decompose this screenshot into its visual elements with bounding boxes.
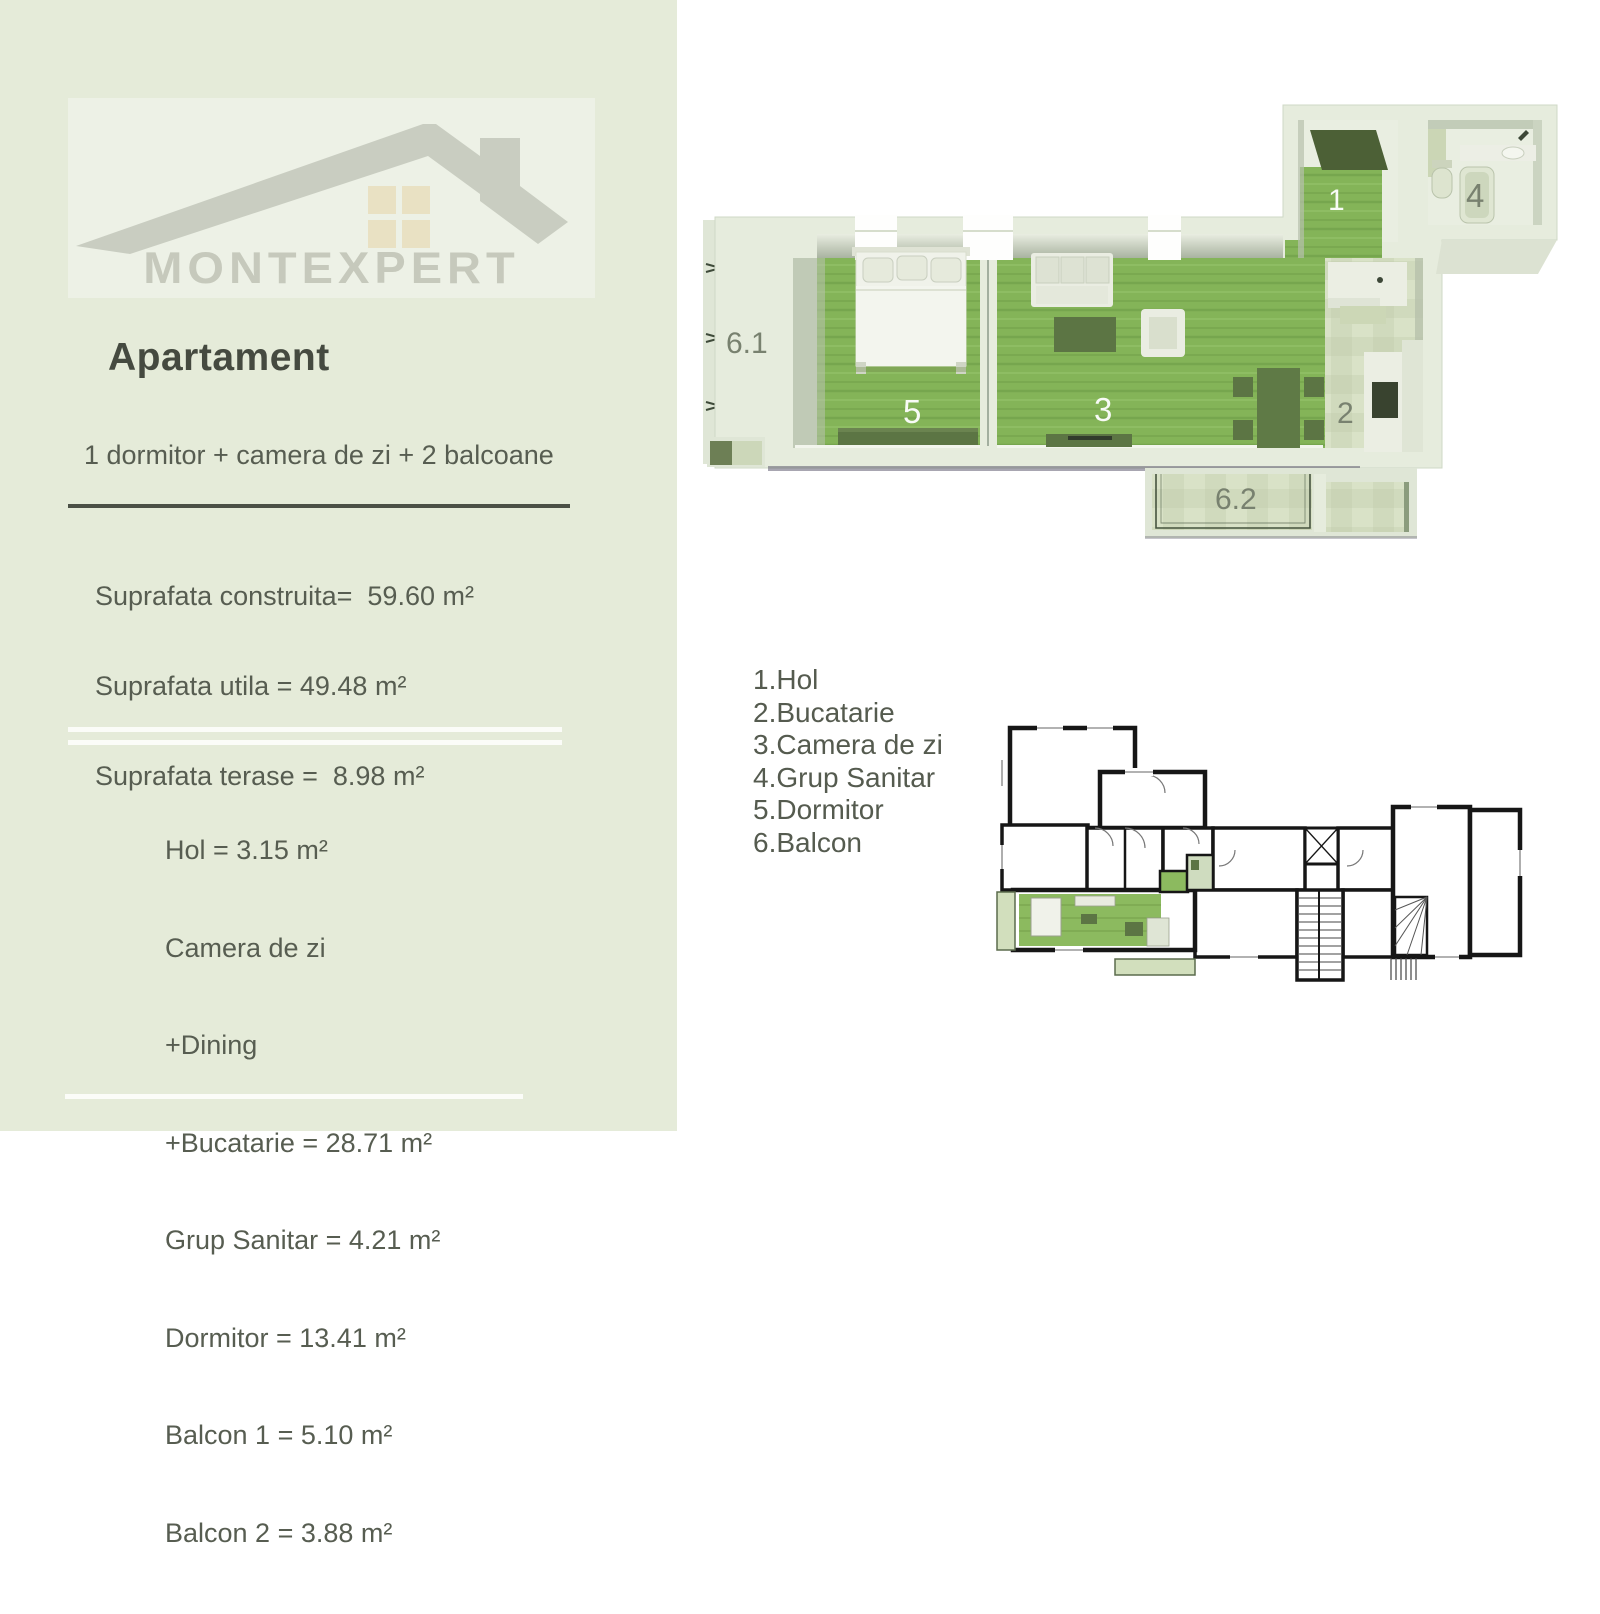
legend-item: 4.Grup Sanitar (753, 762, 943, 795)
legend-item: 3.Camera de zi (753, 729, 943, 762)
unit-bath (1187, 855, 1213, 890)
elevator-icon (1305, 828, 1338, 864)
fridge-icon (1364, 340, 1423, 452)
room-line: Hol = 3.15 m² (165, 834, 440, 867)
room-line: Camera de zi (165, 932, 440, 965)
label-kitchen: 2 (1337, 397, 1354, 430)
sink-counter-icon (1460, 145, 1536, 161)
building-plan-2d (975, 700, 1545, 990)
surface-line: Suprafata construita= 59.60 m² (95, 581, 474, 611)
wardrobe-icon (1310, 130, 1388, 170)
toilet-icon (1432, 168, 1452, 198)
label-balcony-1: 6.1 (726, 327, 768, 360)
balcony-1-annex (707, 437, 765, 467)
legend-item: 5.Dormitor (753, 794, 943, 827)
divider-dark (68, 504, 570, 508)
logo-panel: MONTEXPERT (68, 98, 595, 298)
room-line: +Bucatarie = 28.71 m² (165, 1127, 440, 1160)
legend-item: 6.Balcon (753, 827, 943, 860)
room-line: Balcon 2 = 3.88 m² (165, 1517, 440, 1550)
stairs-icon (1297, 890, 1343, 980)
label-hall: 1 (1328, 184, 1345, 217)
room-line: +Dining (165, 1029, 440, 1062)
brand-name: MONTEXPERT (68, 241, 595, 293)
spiral-stairs-icon (1395, 897, 1427, 955)
room-legend: 1.Hol 2.Bucatarie 3.Camera de zi 4.Grup … (753, 664, 943, 859)
surface-line: Suprafata utila = 49.48 m² (95, 671, 474, 701)
room-line: Balcon 1 = 5.10 m² (165, 1419, 440, 1452)
divider-white (68, 727, 562, 732)
divider-white (65, 1094, 523, 1099)
legend-item: 1.Hol (753, 664, 943, 697)
unit-bed-icon (1031, 898, 1061, 936)
page-title: Apartament (108, 336, 330, 380)
room-line: Dormitor = 13.41 m² (165, 1322, 440, 1355)
apartment-subtitle: 1 dormitor + camera de zi + 2 balcoane (84, 440, 554, 471)
divider-white (68, 740, 562, 745)
sofa-icon (1031, 253, 1113, 307)
armchair-icon (1141, 309, 1185, 357)
balcony-2-area (1145, 468, 1417, 539)
label-bedroom: 5 (903, 393, 921, 430)
glass-partition (980, 258, 997, 448)
coffee-table-icon (1054, 317, 1116, 352)
logo-roof-icon (76, 124, 568, 254)
label-balcony-2: 6.2 (1215, 483, 1257, 516)
logo-window-icon (368, 186, 430, 248)
room-areas-list: Hol = 3.15 m² Camera de zi +Dining +Buca… (165, 769, 440, 1614)
sidebar: MONTEXPERT Apartament 1 dormitor + camer… (0, 0, 677, 1131)
label-bath: 4 (1466, 177, 1484, 214)
tv-stand-icon (1046, 434, 1132, 447)
label-living: 3 (1094, 391, 1112, 428)
legend-item: 2.Bucatarie (753, 697, 943, 730)
bed-icon (852, 247, 970, 374)
wall-bevel (1436, 240, 1557, 274)
entry-steps-icon (1391, 958, 1416, 980)
floor-plan-3d: 5 3 2 1 4 6.1 6.2 (680, 90, 1560, 640)
room-line: Grup Sanitar = 4.21 m² (165, 1224, 440, 1257)
